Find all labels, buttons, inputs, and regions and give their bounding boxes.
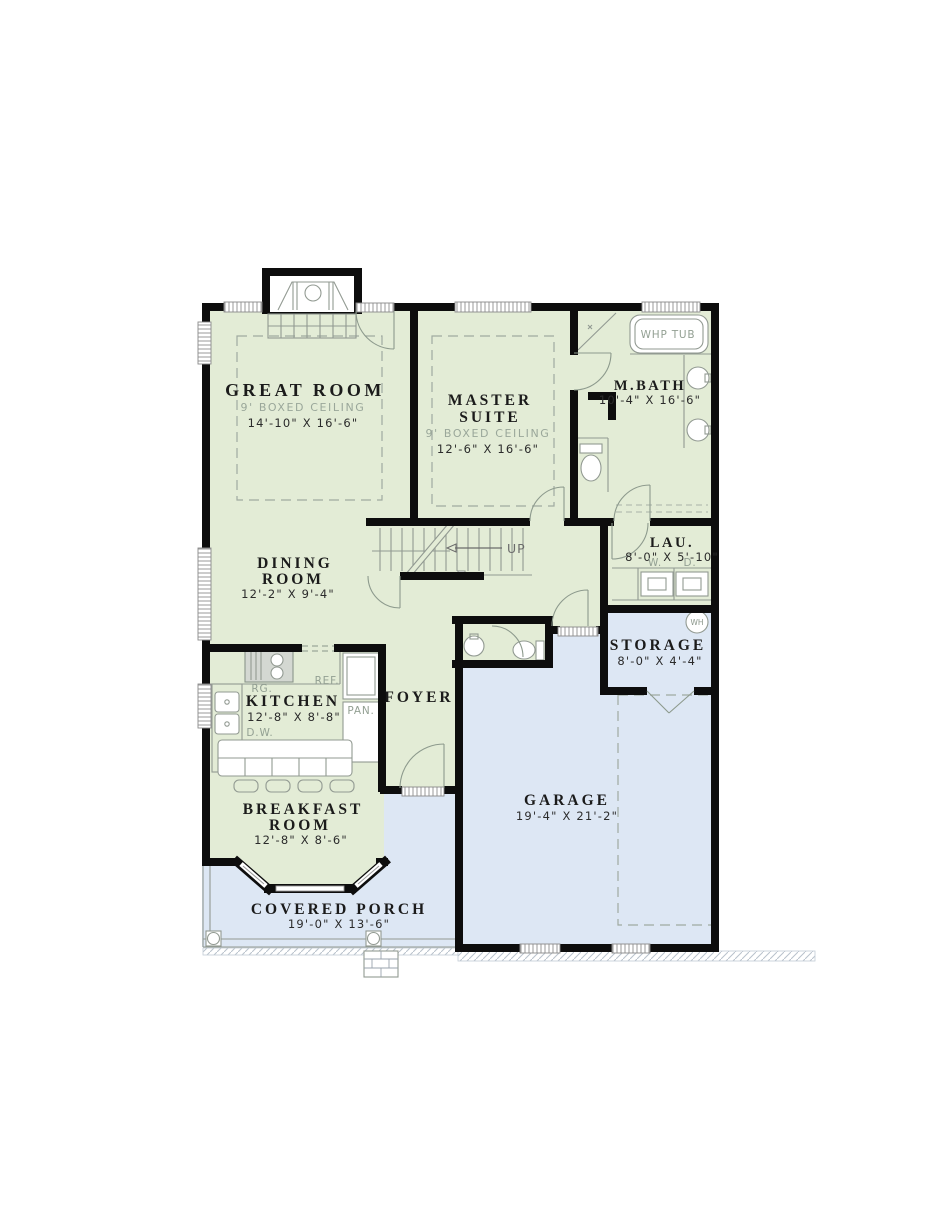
breakfast-title-2: ROOM bbox=[269, 817, 331, 834]
storage-wall-left bbox=[600, 605, 608, 695]
window bbox=[520, 944, 560, 953]
great-room-title: GREAT ROOM bbox=[225, 380, 385, 400]
front-door-threshold bbox=[402, 787, 444, 796]
garage-entry-threshold bbox=[558, 627, 598, 636]
kitchen-wall-top bbox=[209, 644, 302, 652]
master-suite-ceiling: 9' BOXED CEILING bbox=[426, 427, 551, 440]
storage-wall-bottom bbox=[600, 687, 647, 695]
door-threshold bbox=[356, 303, 394, 312]
toilet-tank-icon bbox=[580, 444, 602, 453]
garage-fill bbox=[462, 628, 712, 950]
storage-dims: 8'-0" X 4'-4" bbox=[617, 654, 702, 668]
laundry-dims: 8'-0" X 5'-10" bbox=[625, 550, 719, 564]
dining-dims: 12'-2" X 9'-4" bbox=[241, 587, 335, 601]
master-suite-dims: 12'-6" X 16'-6" bbox=[437, 442, 539, 456]
storage-wall-bottom bbox=[694, 687, 719, 695]
porch-dims: 19'-0" X 13'-6" bbox=[288, 917, 390, 931]
stairs-wall-top bbox=[366, 518, 530, 526]
exterior-wall-right bbox=[711, 303, 719, 952]
whirlpool-tub-label: WHP TUB bbox=[641, 329, 696, 341]
garage-wall-bottom bbox=[455, 944, 520, 952]
foyer-garage-wall bbox=[455, 616, 463, 945]
great-room-ceiling: 9' BOXED CEILING bbox=[241, 401, 366, 414]
powder-toilet-icon bbox=[513, 641, 535, 659]
range-label: RG. bbox=[251, 683, 272, 695]
laundry-title: LAU. bbox=[650, 535, 694, 551]
garage-wall-bottom bbox=[560, 944, 612, 952]
bath-sink-icon bbox=[687, 419, 709, 441]
washer-label: W. bbox=[648, 557, 662, 569]
washer-icon bbox=[641, 572, 673, 596]
master-door-jamb bbox=[564, 518, 578, 526]
dryer-label: D. bbox=[683, 557, 696, 569]
dryer-icon bbox=[676, 572, 708, 596]
garage-wall-bottom bbox=[650, 944, 719, 952]
window bbox=[455, 302, 531, 312]
foyer-fill bbox=[384, 647, 462, 790]
window bbox=[198, 684, 211, 728]
garage-dims: 19'-4" X 21'-2" bbox=[516, 809, 618, 823]
garage-title: GARAGE bbox=[524, 792, 610, 809]
storage-wall-top bbox=[600, 605, 711, 613]
porch-edge-hatch bbox=[203, 948, 458, 955]
kitchen-sink-icon bbox=[215, 714, 239, 734]
toilet-icon bbox=[581, 455, 601, 481]
master-bath-dims: 10'-4" X 16'-6" bbox=[599, 393, 701, 407]
window bbox=[642, 302, 700, 312]
half-bath-wall-bottom bbox=[452, 660, 553, 668]
dining-title-2: ROOM bbox=[262, 571, 324, 588]
master-suite-title-2: SUITE bbox=[459, 409, 521, 426]
window bbox=[198, 548, 211, 640]
floor-plan-drawing: UP bbox=[0, 0, 950, 1229]
garage-labels: GARAGE 19'-4" X 21'-2" bbox=[516, 792, 618, 823]
breakfast-dims: 12'-8" X 8'-6" bbox=[254, 833, 348, 847]
refrigerator-icon bbox=[343, 653, 379, 699]
kitchen-sink-icon bbox=[215, 692, 239, 712]
dishwasher-label: D.W. bbox=[246, 727, 273, 739]
laundry-wall-left bbox=[600, 518, 608, 613]
closet-wall-bottom bbox=[650, 518, 711, 526]
floor-plan-page: UP bbox=[0, 0, 950, 1229]
refrigerator-label: REF. bbox=[315, 675, 340, 687]
bath-sink-icon bbox=[687, 367, 709, 389]
bath-wall-bottom bbox=[578, 518, 614, 526]
pantry-label: PAN. bbox=[347, 705, 374, 717]
greatroom-master-wall bbox=[410, 311, 418, 521]
range-icon bbox=[245, 650, 293, 682]
kitchen-dims: 12'-8" X 8'-8" bbox=[247, 710, 341, 724]
master-suite-title-1: MASTER bbox=[448, 392, 532, 409]
porch-title: COVERED PORCH bbox=[251, 901, 427, 918]
storage-title: STORAGE bbox=[610, 637, 707, 654]
window bbox=[224, 302, 262, 312]
dining-title-1: DINING bbox=[257, 555, 333, 572]
porch-column bbox=[366, 931, 381, 946]
bay-window-center bbox=[276, 886, 344, 891]
master-bath-wall bbox=[570, 390, 578, 521]
powder-toilet-tank bbox=[536, 641, 544, 660]
foyer-title: FOYER bbox=[384, 689, 453, 706]
window bbox=[612, 944, 650, 953]
porch-column bbox=[206, 931, 221, 946]
stairs-wall-bottom bbox=[400, 572, 484, 580]
kitchen-foyer-wall bbox=[378, 644, 386, 792]
stairs-up-label: UP bbox=[507, 541, 526, 556]
water-heater-label: WH bbox=[690, 618, 703, 627]
master-bath-title: M.BATH bbox=[614, 378, 686, 394]
master-bath-wall bbox=[570, 311, 578, 355]
half-bath-wall-top bbox=[452, 616, 550, 624]
window bbox=[198, 322, 211, 364]
great-room-dims: 14'-10" X 16'-6" bbox=[248, 416, 359, 430]
breakfast-title-1: BREAKFAST bbox=[243, 801, 364, 818]
kitchen-title: KITCHEN bbox=[246, 693, 340, 710]
